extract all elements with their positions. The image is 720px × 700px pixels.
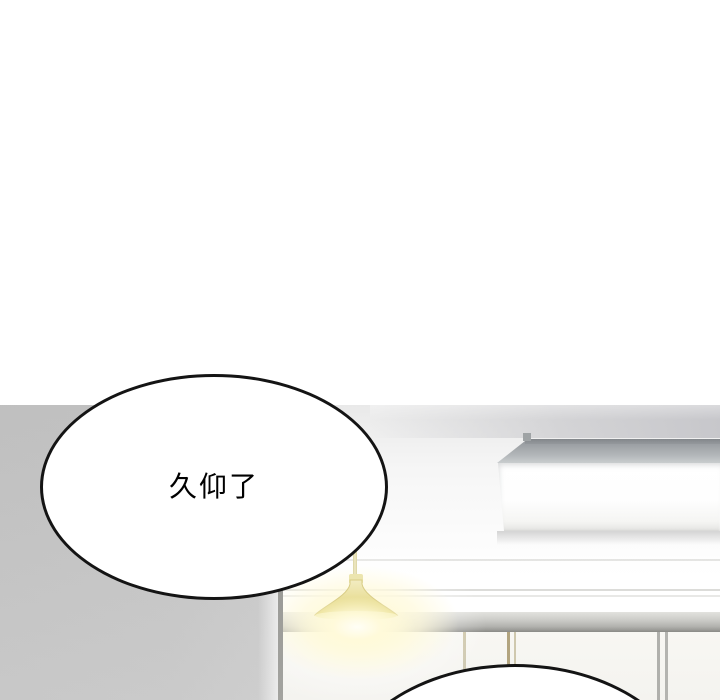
lamp-glow-core: [298, 597, 416, 657]
cabinet-back-edge: [525, 439, 720, 444]
wall-cabinet: [495, 433, 720, 548]
tile-gap: [657, 632, 660, 700]
tile-gap: [665, 632, 668, 700]
speech-bubble-primary: 久仰了: [40, 374, 388, 600]
cabinet-back-lip: [523, 433, 531, 441]
cabinet-front-face: [495, 463, 720, 531]
cabinet-top-surface: [495, 441, 720, 463]
comic-page: 久仰了: [0, 0, 720, 700]
speech-bubble-text: 久仰了: [169, 473, 259, 501]
cabinet-drop-shadow: [497, 531, 720, 545]
